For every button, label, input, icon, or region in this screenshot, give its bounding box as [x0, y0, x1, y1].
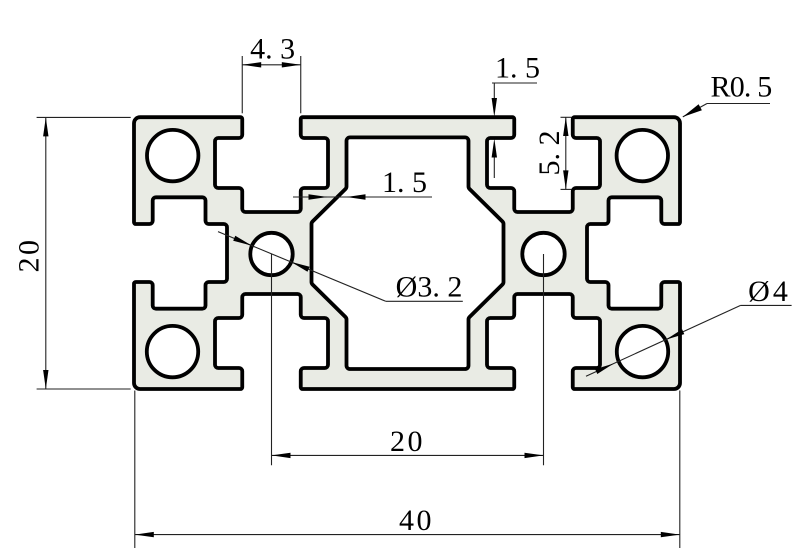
svg-text:Ø3. 2: Ø3. 2	[396, 270, 463, 303]
svg-text:R0. 5: R0. 5	[710, 71, 771, 104]
svg-text:20: 20	[13, 238, 46, 273]
svg-text:40: 40	[399, 504, 434, 537]
svg-text:1. 5: 1. 5	[495, 52, 540, 85]
svg-text:4. 3: 4. 3	[250, 33, 295, 66]
svg-text:Ø4: Ø4	[748, 275, 791, 308]
svg-text:20: 20	[390, 425, 425, 458]
svg-text:5. 2: 5. 2	[533, 131, 566, 176]
svg-text:1. 5: 1. 5	[382, 166, 427, 199]
